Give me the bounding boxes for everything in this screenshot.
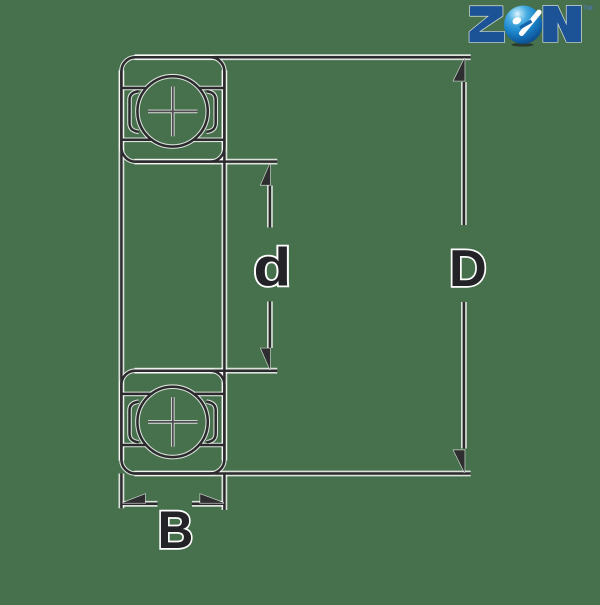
- svg-text:d: d: [253, 238, 291, 297]
- svg-text:B: B: [158, 501, 194, 560]
- svg-text:TM: TM: [583, 5, 593, 12]
- svg-text:D: D: [449, 240, 487, 298]
